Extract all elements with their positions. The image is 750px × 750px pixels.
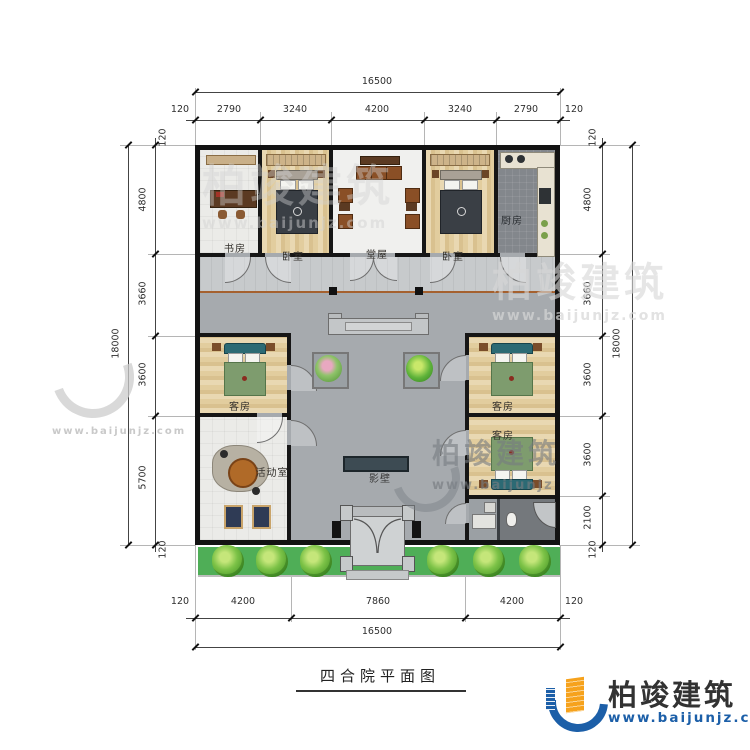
- stove-icon: [539, 188, 551, 204]
- brand-url: www.baijunjz.com: [608, 710, 750, 726]
- column: [415, 287, 423, 295]
- chair-icon: [405, 214, 420, 229]
- dim-bottom-total: 16500: [347, 626, 407, 637]
- door-bathroom: [445, 503, 466, 524]
- side-table-icon: [406, 203, 417, 211]
- bed-emblem: [457, 207, 466, 216]
- room-label-bedroom-left: 卧室: [273, 248, 313, 263]
- gate-wall: [412, 521, 421, 538]
- stool-icon: [252, 487, 260, 495]
- dim-bottom-seg: 7860: [356, 596, 400, 607]
- dim-left-seg: 5700: [138, 456, 149, 500]
- sofa-icon: [356, 166, 372, 180]
- dim-right-seg: 120: [588, 116, 599, 160]
- nightstand-icon: [266, 343, 275, 351]
- dim-top-seg: 3240: [438, 104, 482, 115]
- dim-line-left-total: [128, 145, 129, 545]
- wall: [494, 150, 498, 253]
- plant-icon: [541, 220, 548, 227]
- nightstand-icon: [479, 343, 488, 351]
- wall: [200, 333, 287, 337]
- dim-right-seg: 3600: [583, 353, 594, 397]
- gate-floor: [350, 514, 405, 566]
- bed-emblem: [509, 450, 514, 455]
- dim-left-seg: 120: [158, 528, 169, 572]
- dim-left-seg: 4800: [138, 178, 149, 222]
- porch-edge: [200, 291, 555, 293]
- dim-line-top-segments: [186, 120, 570, 121]
- dim-right-total: 18000: [612, 322, 623, 366]
- nightstand-icon: [479, 480, 488, 488]
- dim-top-seg: 4200: [355, 104, 399, 115]
- dim-bottom-seg: 120: [158, 596, 202, 607]
- door-guest-right-upper: [440, 355, 466, 381]
- chair-icon: [252, 505, 271, 529]
- dim-right-seg: 3600: [583, 433, 594, 477]
- bed-emblem: [509, 376, 514, 381]
- dim-top-total: 16500: [347, 76, 407, 87]
- nightstand-icon: [482, 170, 489, 178]
- nightstand-icon: [318, 170, 325, 178]
- wall: [497, 499, 500, 540]
- bush-icon: [300, 545, 332, 577]
- dim-top-seg: 2790: [504, 104, 548, 115]
- dim-left-seg: 3600: [138, 353, 149, 397]
- pillow-icon: [444, 180, 460, 190]
- sofa-icon: [386, 166, 402, 180]
- dim-line-left-segments: [155, 138, 156, 552]
- room-label-guest-right-upper: 客房: [483, 398, 523, 413]
- wall: [465, 333, 555, 337]
- title-underline: [296, 690, 466, 692]
- gate-step: [346, 570, 409, 580]
- bush-icon: [519, 545, 551, 577]
- wall: [287, 445, 291, 540]
- bench-top: [345, 322, 412, 331]
- brand-name: 柏竣建筑: [608, 672, 736, 714]
- dim-line-top-total: [195, 92, 560, 93]
- chair-icon: [338, 214, 353, 229]
- bed-emblem: [293, 207, 302, 216]
- bush-icon: [427, 545, 459, 577]
- plant-icon: [315, 355, 342, 382]
- dim-top-seg: 120: [552, 104, 596, 115]
- wall: [465, 333, 469, 355]
- watermark-logo-icon: [39, 323, 148, 432]
- pillow-icon: [298, 180, 314, 190]
- chair-icon: [236, 210, 245, 219]
- chair-icon: [218, 210, 227, 219]
- chair-icon: [224, 505, 243, 529]
- nightstand-icon: [533, 480, 542, 488]
- wall: [395, 253, 430, 257]
- room-label-screen-wall: 影壁: [360, 470, 400, 485]
- dim-right-seg: 3660: [583, 272, 594, 316]
- gate-wall: [332, 521, 341, 538]
- shelf-icon: [206, 155, 256, 165]
- bed-headboard: [276, 170, 318, 180]
- door-guest-right-lower: [440, 430, 466, 456]
- wall: [329, 150, 333, 253]
- dim-bottom-seg: 4200: [490, 596, 534, 607]
- burner-icon: [517, 155, 525, 163]
- pillow-icon: [462, 180, 478, 190]
- brand-logo: 柏竣建筑 www.baijunjz.com: [544, 670, 744, 738]
- drawing-title: 四合院平面图: [290, 665, 470, 686]
- dim-bottom-seg: 120: [552, 596, 596, 607]
- bush-icon: [473, 545, 505, 577]
- nightstand-icon: [533, 343, 542, 351]
- floorplan-page: { "title": "四合院平面图", "plan": { "rooms": …: [0, 0, 750, 750]
- room-label-guest-left: 客房: [220, 398, 260, 413]
- bed-headboard: [491, 479, 533, 490]
- pillow-icon: [280, 180, 296, 190]
- altar-table-icon: [360, 156, 400, 165]
- dim-right-seg: 120: [588, 528, 599, 572]
- floorplan: 书房 卧室 堂屋 卧室 厨房 客房 客房 客房 活动室 影壁: [195, 145, 560, 545]
- room-label-activity: 活动室: [249, 464, 295, 479]
- plant-icon: [541, 232, 548, 239]
- stool-icon: [220, 450, 228, 458]
- room-label-kitchen: 厨房: [492, 212, 532, 227]
- brand-block-icon: [546, 688, 555, 710]
- dim-line-bottom-total: [195, 647, 560, 648]
- wall: [282, 413, 291, 417]
- nightstand-icon: [212, 343, 221, 351]
- side-table-icon: [339, 203, 350, 211]
- door-activity: [291, 420, 317, 446]
- wall: [465, 380, 469, 430]
- nightstand-icon: [432, 170, 439, 178]
- dim-line-right-segments: [602, 138, 603, 552]
- column: [329, 287, 337, 295]
- room-label-hall: 堂屋: [357, 246, 397, 261]
- bed-headboard: [440, 170, 482, 180]
- wall: [287, 333, 291, 365]
- room-label-bedroom-right: 卧室: [433, 248, 473, 263]
- wall: [469, 413, 555, 417]
- room-label-guest-right-lower: 客房: [483, 427, 523, 442]
- plant-icon: [406, 355, 433, 382]
- dim-line-right-total: [632, 145, 633, 545]
- gate-column: [340, 505, 353, 521]
- dim-right-seg: 4800: [583, 178, 594, 222]
- gate-column: [402, 505, 415, 521]
- bush-icon: [212, 545, 244, 577]
- sofa-icon: [371, 166, 387, 180]
- chair-icon: [405, 188, 420, 203]
- wall: [200, 413, 257, 417]
- dim-top-seg: 3240: [273, 104, 317, 115]
- wall: [422, 150, 426, 253]
- burner-icon: [505, 155, 513, 163]
- desk-item: [216, 192, 224, 197]
- room-label-study: 书房: [215, 240, 255, 255]
- dim-line-bottom-segments: [186, 618, 570, 619]
- nightstand-icon: [268, 170, 275, 178]
- dim-top-seg: 120: [158, 104, 202, 115]
- sink-icon: [472, 514, 496, 529]
- gate-lintel: [346, 506, 409, 517]
- brand-building-icon: [566, 677, 584, 714]
- dim-left-seg: 120: [158, 116, 169, 160]
- dim-left-seg: 3660: [138, 272, 149, 316]
- dim-left-total: 18000: [111, 322, 122, 366]
- toilet-icon: [506, 512, 517, 527]
- bush-icon: [256, 545, 288, 577]
- kitchen-counter: [537, 167, 555, 257]
- watermark-url: www.baijunjz.com: [52, 426, 186, 437]
- wall: [258, 150, 262, 253]
- bed-emblem: [242, 376, 247, 381]
- wardrobe-icon: [430, 154, 490, 166]
- washer-icon: [484, 502, 496, 513]
- chair-icon: [338, 188, 353, 203]
- dim-top-seg: 2790: [207, 104, 251, 115]
- dim-bottom-seg: 4200: [221, 596, 265, 607]
- wardrobe-icon: [266, 154, 326, 166]
- gate-door-arcs: [351, 517, 404, 559]
